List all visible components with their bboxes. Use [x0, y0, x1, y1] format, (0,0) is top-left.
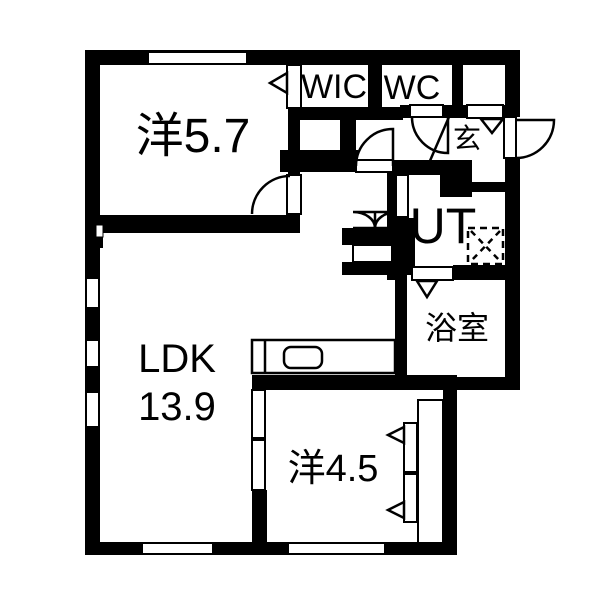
kitchen-sink: [284, 347, 322, 368]
m-closet-opening: [353, 245, 392, 262]
wic-door-leaf: [287, 65, 301, 108]
window-left-3: [86, 392, 99, 427]
entrance-door-leaf: [504, 117, 516, 158]
window-bottom-2: [288, 543, 385, 554]
window-bottom-1: [142, 543, 213, 554]
label-genkan: 玄: [453, 123, 481, 154]
ut-sliding-door-leaf: [396, 175, 408, 217]
window-left-1: [86, 278, 99, 308]
yo45-closet-box: [418, 400, 443, 543]
yo57-door-leaf: [287, 175, 301, 214]
label-bath: 浴室: [425, 310, 489, 346]
label-wc: WC: [384, 69, 441, 107]
kitchen-counter: [252, 340, 395, 373]
wall-notch: [96, 225, 103, 237]
label-yo57: 洋5.7: [136, 110, 251, 163]
label-ldk-line1: LDK: [138, 337, 216, 381]
yo45-sliding-door-2: [252, 440, 265, 490]
yo45-sliding-door-1: [252, 390, 265, 438]
window-left-2: [86, 340, 99, 367]
yo45-closet-door-2: [404, 474, 417, 522]
window-top: [148, 52, 247, 64]
label-yo45: 洋4.5: [288, 448, 379, 490]
hall-door-leaf: [356, 160, 393, 172]
label-ut: UT: [410, 198, 477, 254]
entry-closet-door-leaf: [467, 105, 503, 118]
yo45-closet-door-1: [404, 423, 417, 472]
label-wic: WIC: [301, 68, 367, 106]
label-ldk-line2: 13.9: [138, 385, 216, 429]
floorplan-canvas: 洋5.7 WIC WC 玄 UT 浴室 LDK 13.9 洋4.5: [0, 0, 600, 600]
floorplan: 洋5.7 WIC WC 玄 UT 浴室 LDK 13.9 洋4.5: [0, 0, 600, 600]
bath-door-leaf: [412, 267, 453, 280]
